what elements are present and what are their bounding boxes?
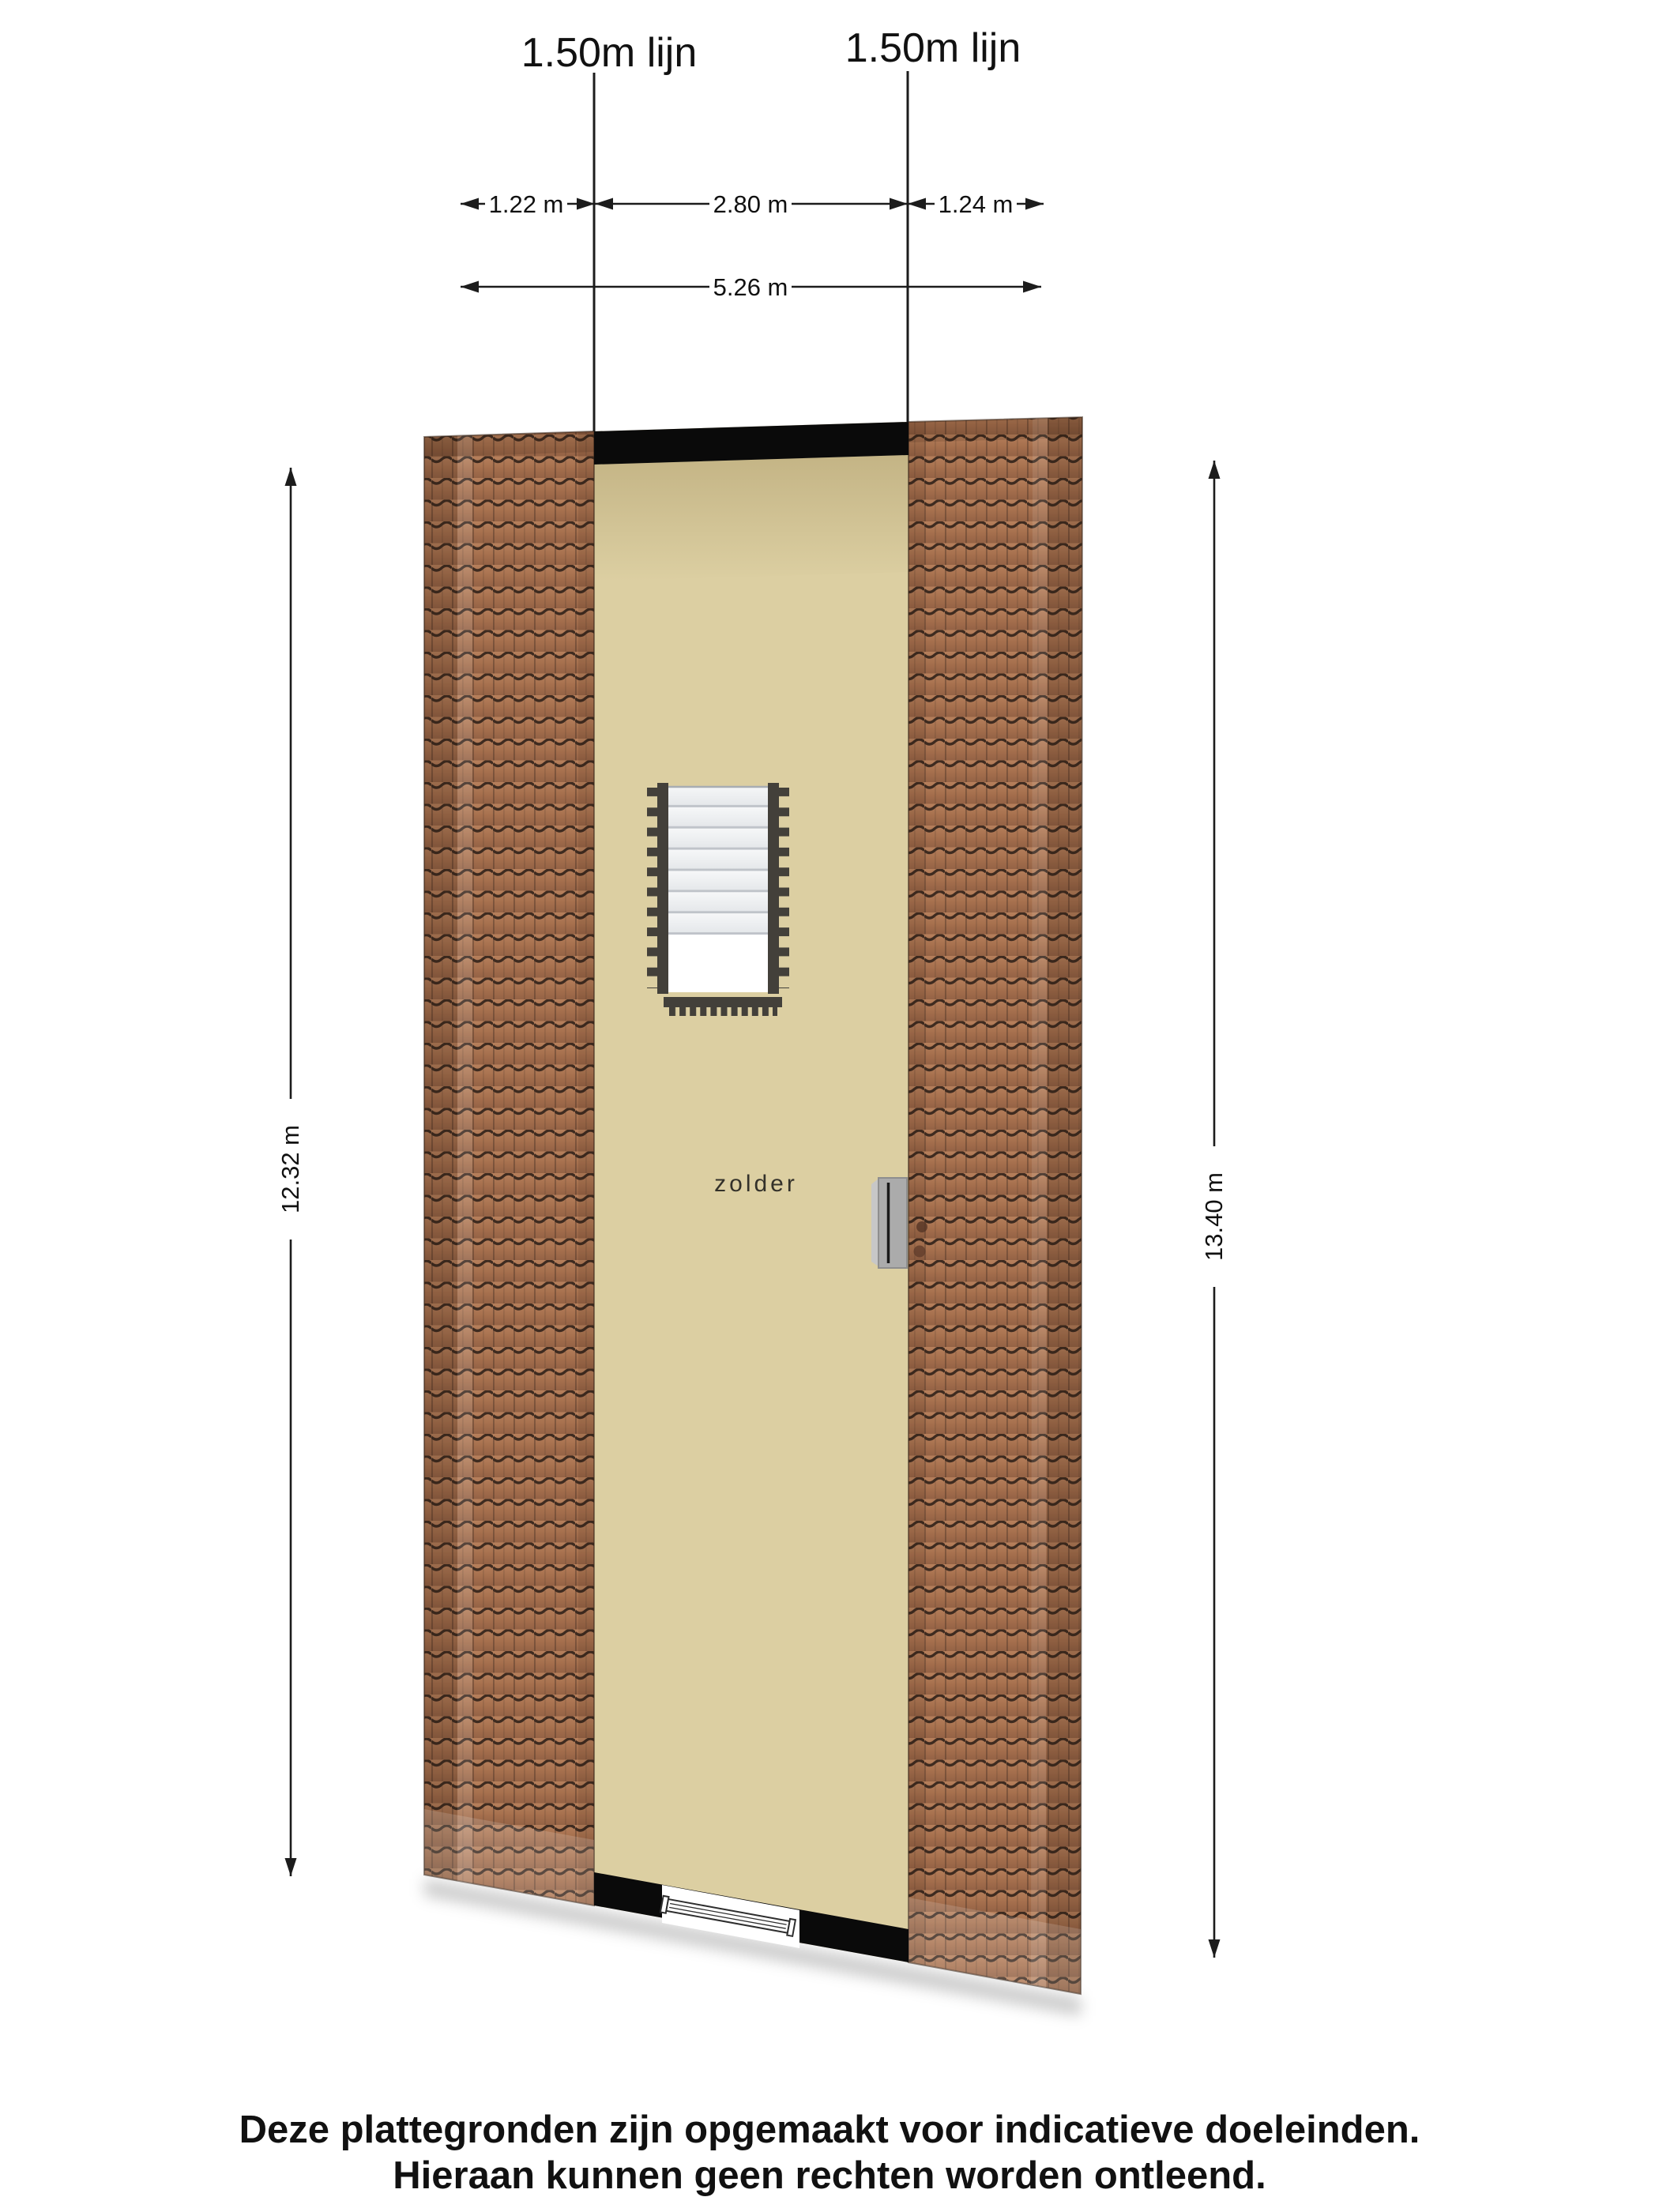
roof-vent-dot-2 [914, 1246, 926, 1258]
arrow-icon [461, 281, 479, 293]
floorplan-page: 1.50m lijn 1.50m lijn 1.22 m 2.80 m 1.24… [0, 0, 1659, 2212]
roof-window-side [871, 1179, 878, 1266]
floorplan-svg: 1.50m lijn 1.50m lijn 1.22 m 2.80 m 1.24… [0, 0, 1659, 2212]
arrow-icon [1209, 461, 1221, 479]
stair-treads [668, 786, 768, 935]
dim-label-1-24: 1.24 m [939, 190, 1014, 218]
stair-balusters-left [647, 788, 657, 988]
stair-rail-left [657, 783, 668, 994]
room-label-zolder: zolder [714, 1171, 798, 1197]
attic-floor-shading [594, 455, 908, 581]
stair-balusters-right [779, 788, 789, 988]
roof-left-fold-highlight [457, 435, 472, 1883]
roof-right-edge-fold [1046, 417, 1082, 1994]
arrow-icon [1025, 198, 1044, 210]
stair-opening [668, 935, 768, 992]
dim-label-13-40: 13.40 m [1200, 1172, 1228, 1261]
staircase [647, 783, 789, 1016]
arrow-icon [595, 198, 613, 210]
arrow-icon [890, 198, 908, 210]
footer-line-2: Hieraan kunnen geen rechten worden ontle… [393, 2154, 1266, 2197]
roof-vent-dot-1 [916, 1221, 927, 1232]
arrow-icon [577, 198, 595, 210]
roof-right-fold-highlight [1031, 418, 1048, 1988]
arrow-icon [285, 468, 297, 486]
stair-rail-right [768, 783, 779, 994]
stair-bottom-rail [664, 997, 782, 1007]
footer-line-1: Deze plattegronden zijn opgemaakt voor i… [239, 2109, 1420, 2151]
arrow-icon [1023, 281, 1041, 293]
line-label-left: 1.50m lijn [521, 30, 698, 76]
arrow-icon [1209, 1939, 1221, 1958]
roof-left-edge-fold [424, 436, 457, 1881]
roof-window [878, 1178, 907, 1268]
arrow-icon [285, 1858, 297, 1876]
dim-label-5-26: 5.26 m [713, 273, 788, 301]
floorplan [424, 417, 1082, 1994]
arrow-icon [908, 198, 926, 210]
roof-panel-left [424, 431, 594, 1905]
roof-right-inner-shade [908, 422, 924, 1966]
roof-panel-right [908, 417, 1082, 1994]
line-label-right: 1.50m lijn [845, 25, 1021, 71]
roof-left-inner-shade [578, 431, 594, 1905]
dim-label-1-22: 1.22 m [489, 190, 564, 218]
dim-label-2-80: 2.80 m [713, 190, 788, 218]
dim-label-12-32: 12.32 m [276, 1125, 304, 1213]
stair-bottom-balusters [669, 1007, 777, 1016]
arrow-icon [461, 198, 479, 210]
